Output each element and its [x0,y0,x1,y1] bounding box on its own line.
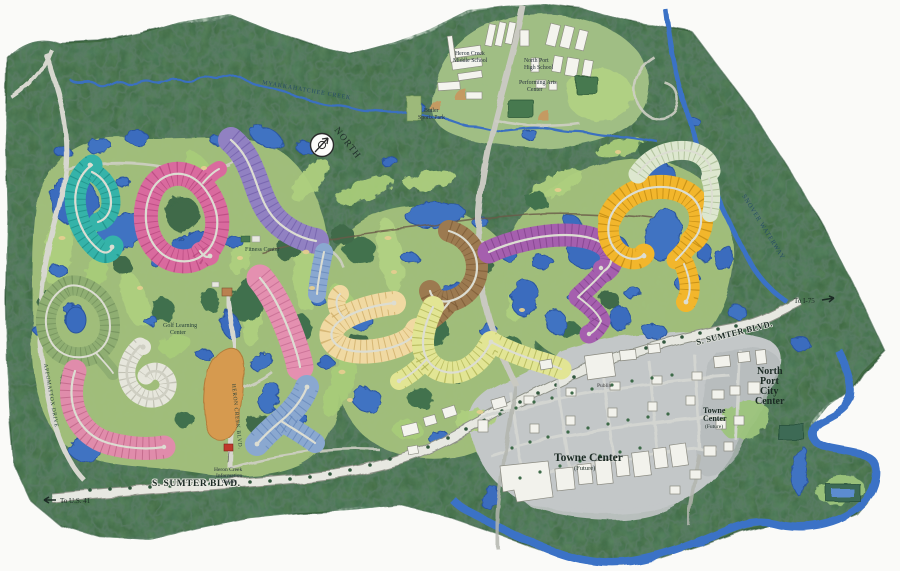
svg-text:High School: High School [524,65,554,71]
svg-text:(Future): (Future) [574,465,595,472]
svg-text:Center: Center [703,414,727,423]
svg-text:Center: Center [170,330,186,336]
svg-text:Publix: Publix [597,383,612,389]
svg-text:Information: Information [216,472,243,479]
svg-text:Heron Creek: Heron Creek [455,51,485,57]
svg-text:(Future): (Future) [705,423,723,430]
svg-text:North Port: North Port [524,58,549,64]
svg-text:Middle School: Middle School [453,58,488,64]
svg-text:Fitness Center: Fitness Center [245,247,280,253]
svg-text:To I-75: To I-75 [794,297,815,305]
svg-text:Center: Center [527,87,543,93]
svg-text:Performing Arts: Performing Arts [519,79,557,86]
svg-text:Towne Center: Towne Center [554,452,623,464]
svg-text:Center: Center [755,396,785,407]
svg-text:Sports Park: Sports Park [418,115,445,121]
svg-text:Butler: Butler [424,108,439,114]
svg-text:Center: Center [222,479,237,485]
svg-text:Golf Learning: Golf Learning [163,322,197,329]
svg-text:To U.S. 41: To U.S. 41 [60,497,91,505]
